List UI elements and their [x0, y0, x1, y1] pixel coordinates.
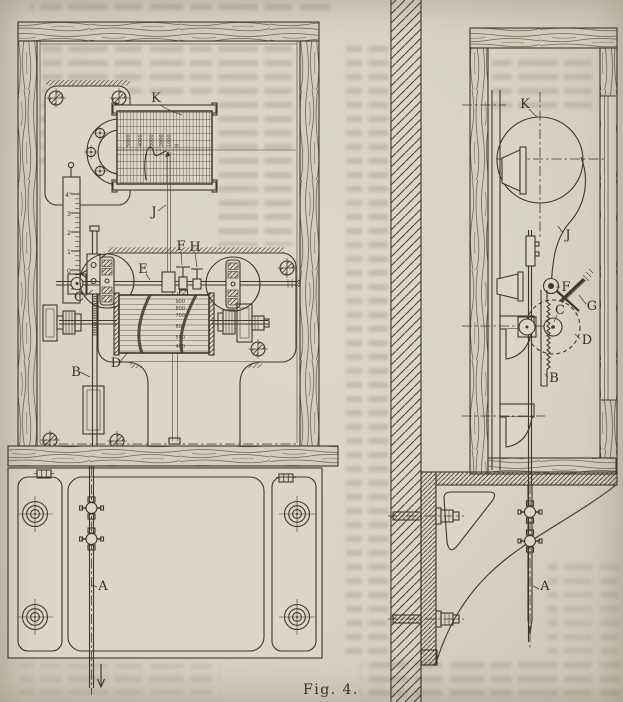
scanned-book-page: 5000 4000 3000 2000 1000 0 4" 3 2 1 0: [0, 0, 623, 702]
label-A: A: [539, 579, 550, 594]
drum-scale-value: 4000: [138, 134, 144, 147]
label-F: F: [176, 239, 185, 254]
back-stile-section: [470, 48, 488, 474]
label-D: D: [582, 333, 592, 348]
wall-section: [391, 0, 421, 702]
label-J: J: [563, 228, 570, 243]
label-C: C: [74, 290, 84, 305]
drum-scale-value: 5000: [126, 134, 132, 147]
top-rail-section: [470, 28, 617, 48]
cylinder-scale-value: 900: [175, 299, 185, 305]
left-adjuster: [43, 305, 81, 341]
label-D: D: [111, 356, 121, 371]
label-E: E: [138, 262, 148, 277]
cone-pulley-upper: [502, 147, 526, 194]
label-J: J: [149, 205, 156, 220]
case-top-rail: [18, 22, 319, 41]
label-H: H: [189, 240, 200, 255]
bracket-foot: [421, 650, 437, 665]
ruler-mark: 1: [67, 248, 71, 256]
ruler-mark: 2: [67, 229, 71, 237]
figure-4-drawing: 5000 4000 3000 2000 1000 0 4" 3 2 1 0: [0, 0, 623, 702]
drum-scale-value: 2000: [159, 134, 165, 147]
cylinder-scale-value: 400: [175, 344, 185, 350]
rod-clamp-bar: [526, 236, 535, 266]
drum-side: [496, 92, 604, 280]
cylinder-scale-value: 800: [175, 306, 185, 312]
drum-scale-value: 1000: [167, 134, 173, 147]
ruler-mark: 4": [65, 191, 72, 199]
label-A: A: [97, 579, 108, 594]
label-G: G: [587, 299, 597, 314]
cylinder-scale-value: 700: [175, 313, 185, 319]
ruler-mark: 3: [67, 210, 71, 218]
case-right-stile: [300, 41, 319, 446]
label-F: F: [561, 280, 570, 295]
label-K: K: [520, 97, 530, 112]
bracket-shelf: [436, 472, 617, 485]
label-K: K: [151, 91, 161, 106]
label-C: C: [555, 303, 565, 318]
figure-caption: Fig. 4.: [303, 682, 359, 698]
label-B: B: [71, 365, 81, 380]
cylinder-scale-value: 500: [175, 335, 185, 341]
float-wire-right: [518, 484, 542, 648]
pen-carriage: [162, 272, 175, 292]
gusset-cutout: [444, 492, 495, 550]
label-B: B: [549, 371, 559, 386]
mounting-plate: [8, 468, 322, 658]
drum-scale-value: 3000: [149, 134, 155, 147]
cylinder-scale-value: 600: [175, 324, 185, 330]
cone-pulley-lower: [497, 272, 523, 301]
case-left-stile: [18, 41, 37, 446]
base-plank: [8, 446, 338, 466]
drum-scale-value: 0: [175, 144, 181, 147]
